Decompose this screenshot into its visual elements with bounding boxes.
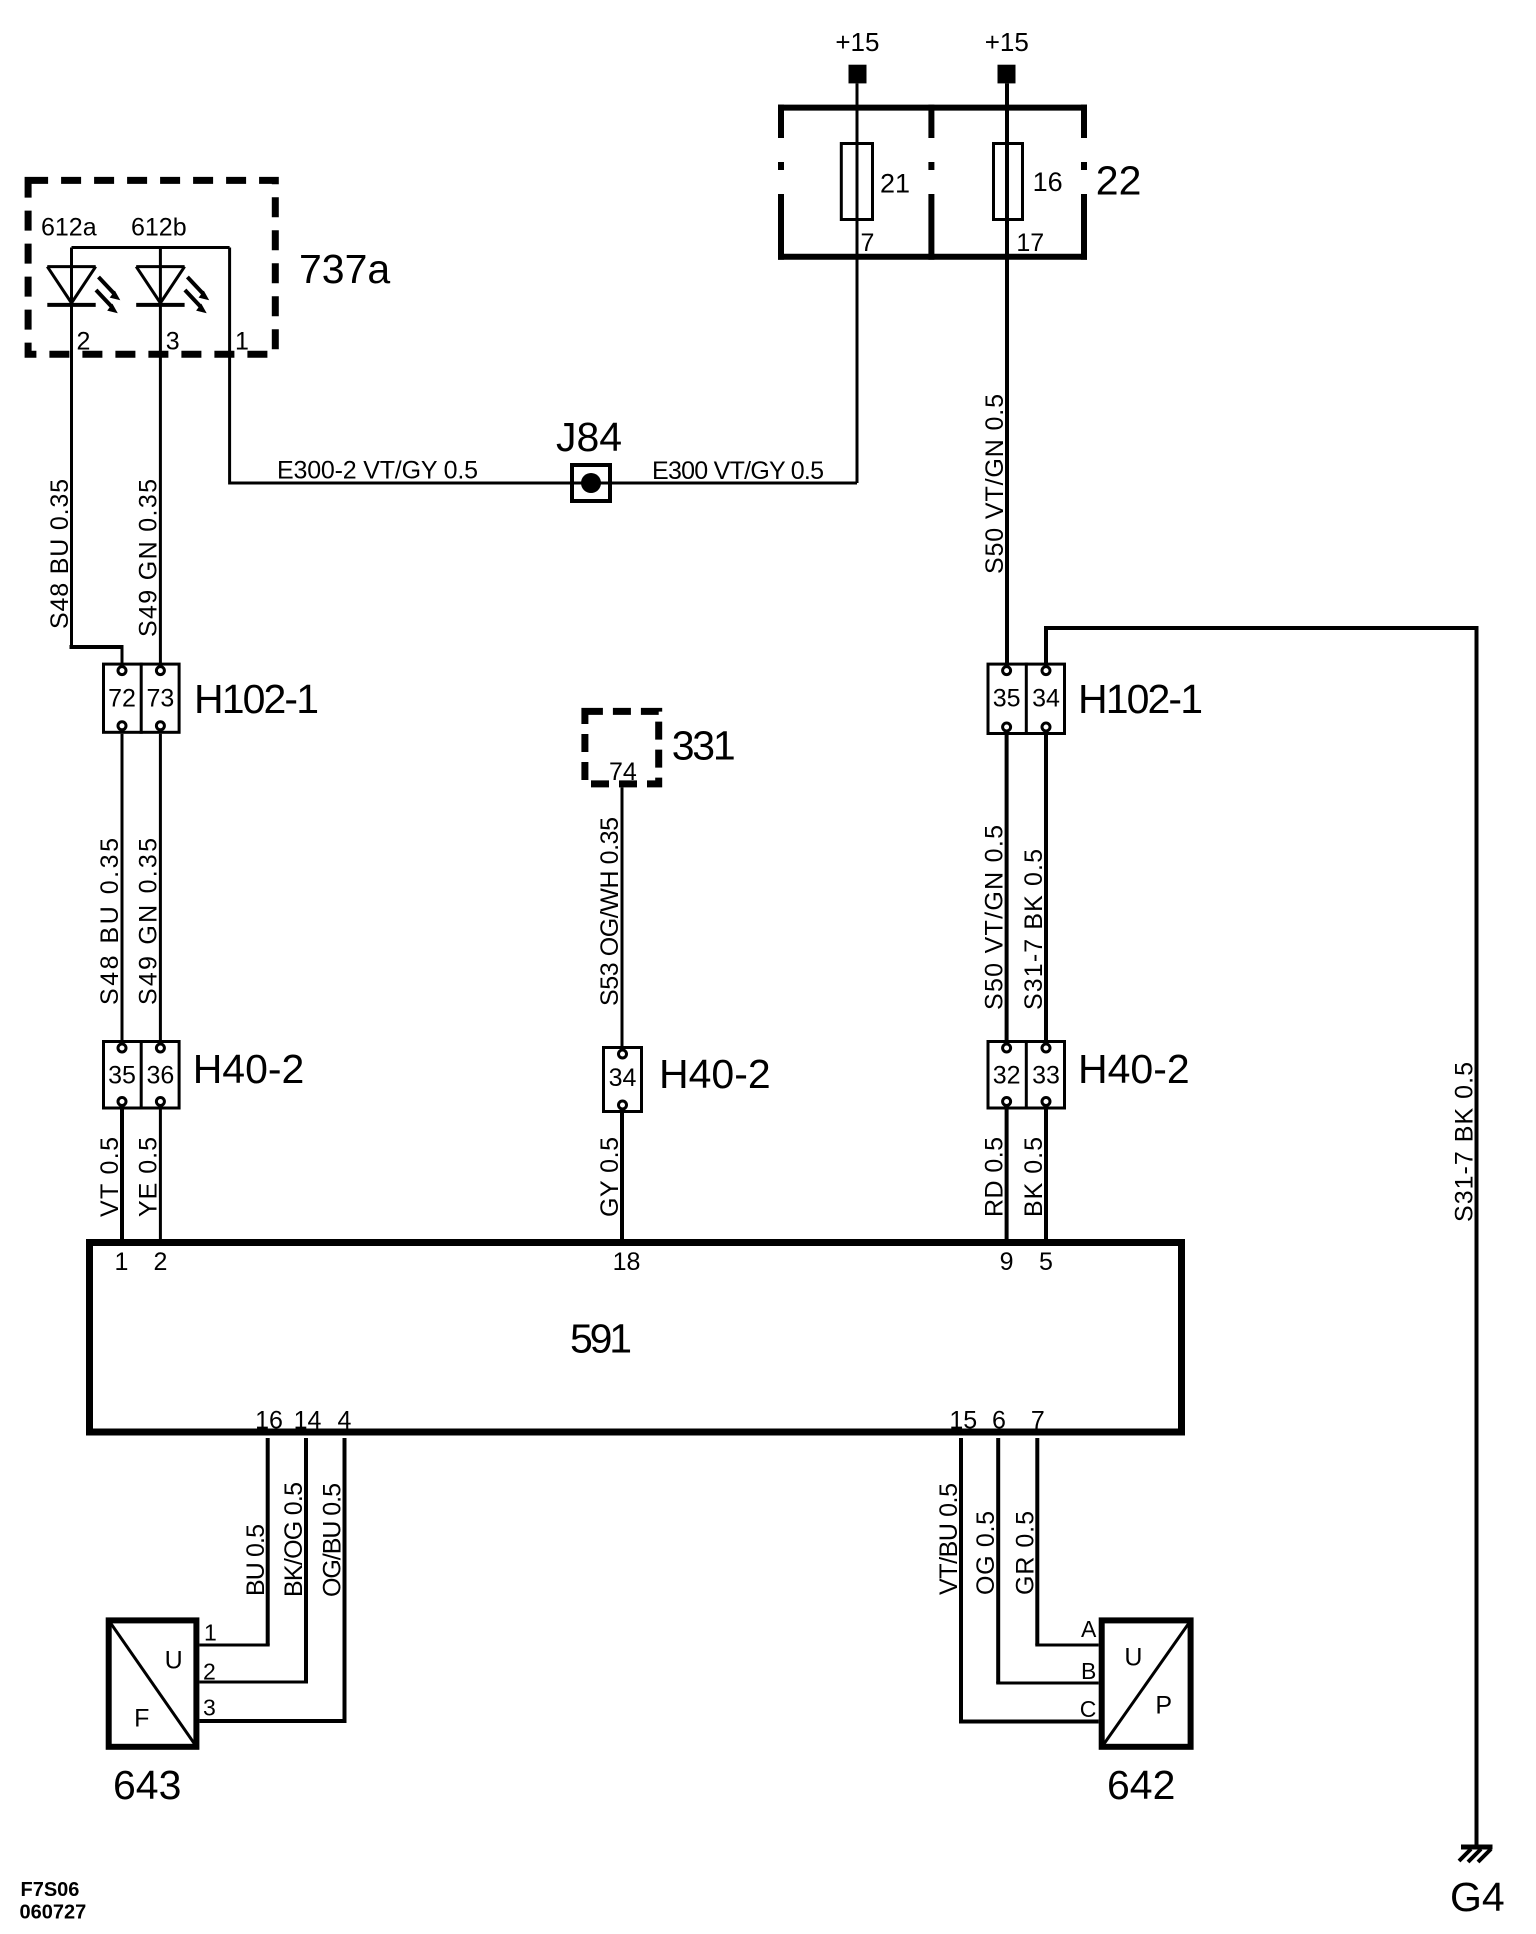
svg-text:612a: 612a — [41, 214, 97, 242]
svg-text:S48 BU 0.35: S48 BU 0.35 — [96, 838, 124, 1005]
svg-text:S49 GN 0.35: S49 GN 0.35 — [135, 479, 163, 637]
svg-text:16: 16 — [255, 1407, 283, 1435]
svg-text:E300 VT/GY 0.5: E300 VT/GY 0.5 — [652, 457, 824, 485]
svg-text:H40-2: H40-2 — [659, 1051, 771, 1097]
svg-text:35: 35 — [993, 685, 1021, 713]
svg-text:34: 34 — [609, 1064, 637, 1092]
svg-text:RD 0.5: RD 0.5 — [981, 1137, 1009, 1217]
svg-text:21: 21 — [880, 169, 910, 199]
svg-text:H102-1: H102-1 — [194, 676, 319, 722]
svg-text:1: 1 — [115, 1248, 129, 1276]
svg-text:YE 0.5: YE 0.5 — [135, 1137, 163, 1217]
svg-text:U: U — [165, 1647, 183, 1675]
svg-text:E300-2 VT/GY 0.5: E300-2 VT/GY 0.5 — [277, 457, 478, 485]
svg-text:5: 5 — [1039, 1248, 1053, 1276]
svg-text:73: 73 — [146, 685, 174, 713]
svg-text:16: 16 — [1033, 167, 1063, 197]
svg-text:2: 2 — [77, 328, 91, 356]
svg-text:+15: +15 — [985, 27, 1029, 57]
svg-text:C: C — [1080, 1696, 1097, 1722]
svg-text:GY 0.5: GY 0.5 — [596, 1137, 624, 1217]
svg-text:591: 591 — [570, 1316, 632, 1362]
svg-text:OG/BU 0.5: OG/BU 0.5 — [319, 1483, 347, 1597]
svg-text:S50 VT/GN 0.5: S50 VT/GN 0.5 — [981, 394, 1009, 574]
svg-text:U: U — [1124, 1644, 1142, 1672]
svg-text:4: 4 — [338, 1407, 352, 1435]
svg-text:9: 9 — [1000, 1248, 1014, 1276]
svg-text:1: 1 — [235, 328, 249, 356]
svg-text:7: 7 — [861, 229, 875, 257]
svg-text:34: 34 — [1032, 685, 1060, 713]
svg-text:B: B — [1081, 1658, 1096, 1684]
svg-text:S53 OG/WH 0.35: S53 OG/WH 0.35 — [596, 817, 624, 1006]
svg-text:1: 1 — [204, 1620, 217, 1646]
svg-text:S31-7 BK 0.5: S31-7 BK 0.5 — [1451, 1062, 1479, 1222]
svg-text:BK/OG 0.5: BK/OG 0.5 — [280, 1482, 308, 1597]
svg-text:14: 14 — [294, 1407, 322, 1435]
svg-text:GR 0.5: GR 0.5 — [1011, 1511, 1039, 1595]
svg-text:H102-1: H102-1 — [1078, 676, 1203, 722]
svg-text:G4: G4 — [1450, 1874, 1505, 1920]
svg-text:F7S06: F7S06 — [21, 1879, 80, 1901]
svg-text:6: 6 — [992, 1407, 1006, 1435]
svg-text:7: 7 — [1031, 1407, 1045, 1435]
svg-text:P: P — [1155, 1692, 1172, 1720]
svg-text:J84: J84 — [556, 414, 622, 460]
svg-text:H40-2: H40-2 — [1078, 1046, 1190, 1092]
svg-text:22: 22 — [1096, 157, 1142, 203]
svg-text:331: 331 — [672, 723, 736, 769]
svg-text:642: 642 — [1107, 1762, 1175, 1808]
svg-text:737a: 737a — [299, 246, 390, 292]
svg-text:060727: 060727 — [20, 1902, 87, 1924]
svg-text:S50 VT/GN 0.5: S50 VT/GN 0.5 — [981, 825, 1009, 1010]
svg-text:VT/BU 0.5: VT/BU 0.5 — [935, 1483, 963, 1595]
svg-text:33: 33 — [1032, 1062, 1060, 1090]
svg-text:S48 BU 0.35: S48 BU 0.35 — [46, 479, 74, 629]
svg-text:3: 3 — [166, 328, 180, 356]
svg-text:612b: 612b — [131, 214, 187, 242]
svg-text:17: 17 — [1016, 229, 1044, 257]
svg-text:15: 15 — [949, 1407, 977, 1435]
svg-text:VT 0.5: VT 0.5 — [96, 1137, 124, 1217]
svg-text:2: 2 — [203, 1659, 216, 1685]
svg-text:S49 GN 0.35: S49 GN 0.35 — [135, 838, 163, 1005]
svg-text:643: 643 — [113, 1762, 181, 1808]
svg-text:3: 3 — [203, 1695, 216, 1721]
svg-text:F: F — [134, 1704, 149, 1732]
svg-text:A: A — [1081, 1616, 1097, 1642]
svg-text:2: 2 — [153, 1248, 167, 1276]
svg-text:S31-7 BK 0.5: S31-7 BK 0.5 — [1020, 849, 1048, 1010]
svg-text:BU 0.5: BU 0.5 — [242, 1524, 270, 1596]
svg-text:H40-2: H40-2 — [193, 1046, 305, 1092]
svg-text:35: 35 — [108, 1062, 136, 1090]
svg-text:36: 36 — [146, 1062, 174, 1090]
svg-text:BK 0.5: BK 0.5 — [1020, 1137, 1048, 1217]
svg-text:18: 18 — [613, 1248, 641, 1276]
svg-text:OG 0.5: OG 0.5 — [972, 1511, 1000, 1595]
svg-text:72: 72 — [108, 685, 136, 713]
svg-text:32: 32 — [993, 1062, 1021, 1090]
svg-text:74: 74 — [609, 758, 637, 786]
svg-text:+15: +15 — [835, 27, 879, 57]
